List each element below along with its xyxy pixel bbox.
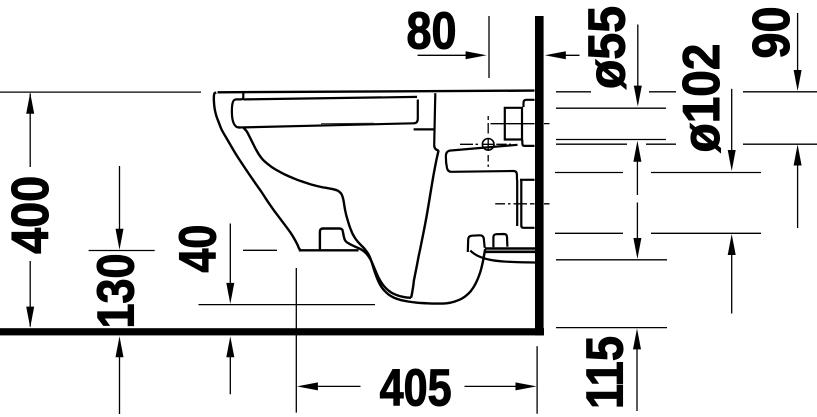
svg-text:400: 400 (2, 176, 60, 254)
svg-text:115: 115 (577, 336, 635, 409)
svg-text:40: 40 (170, 225, 228, 273)
svg-text:90: 90 (743, 7, 801, 59)
svg-text:130: 130 (88, 254, 146, 329)
svg-text:ø55: ø55 (579, 6, 637, 89)
svg-text:405: 405 (380, 359, 452, 417)
svg-text:ø102: ø102 (673, 44, 731, 153)
svg-text:80: 80 (407, 3, 457, 61)
